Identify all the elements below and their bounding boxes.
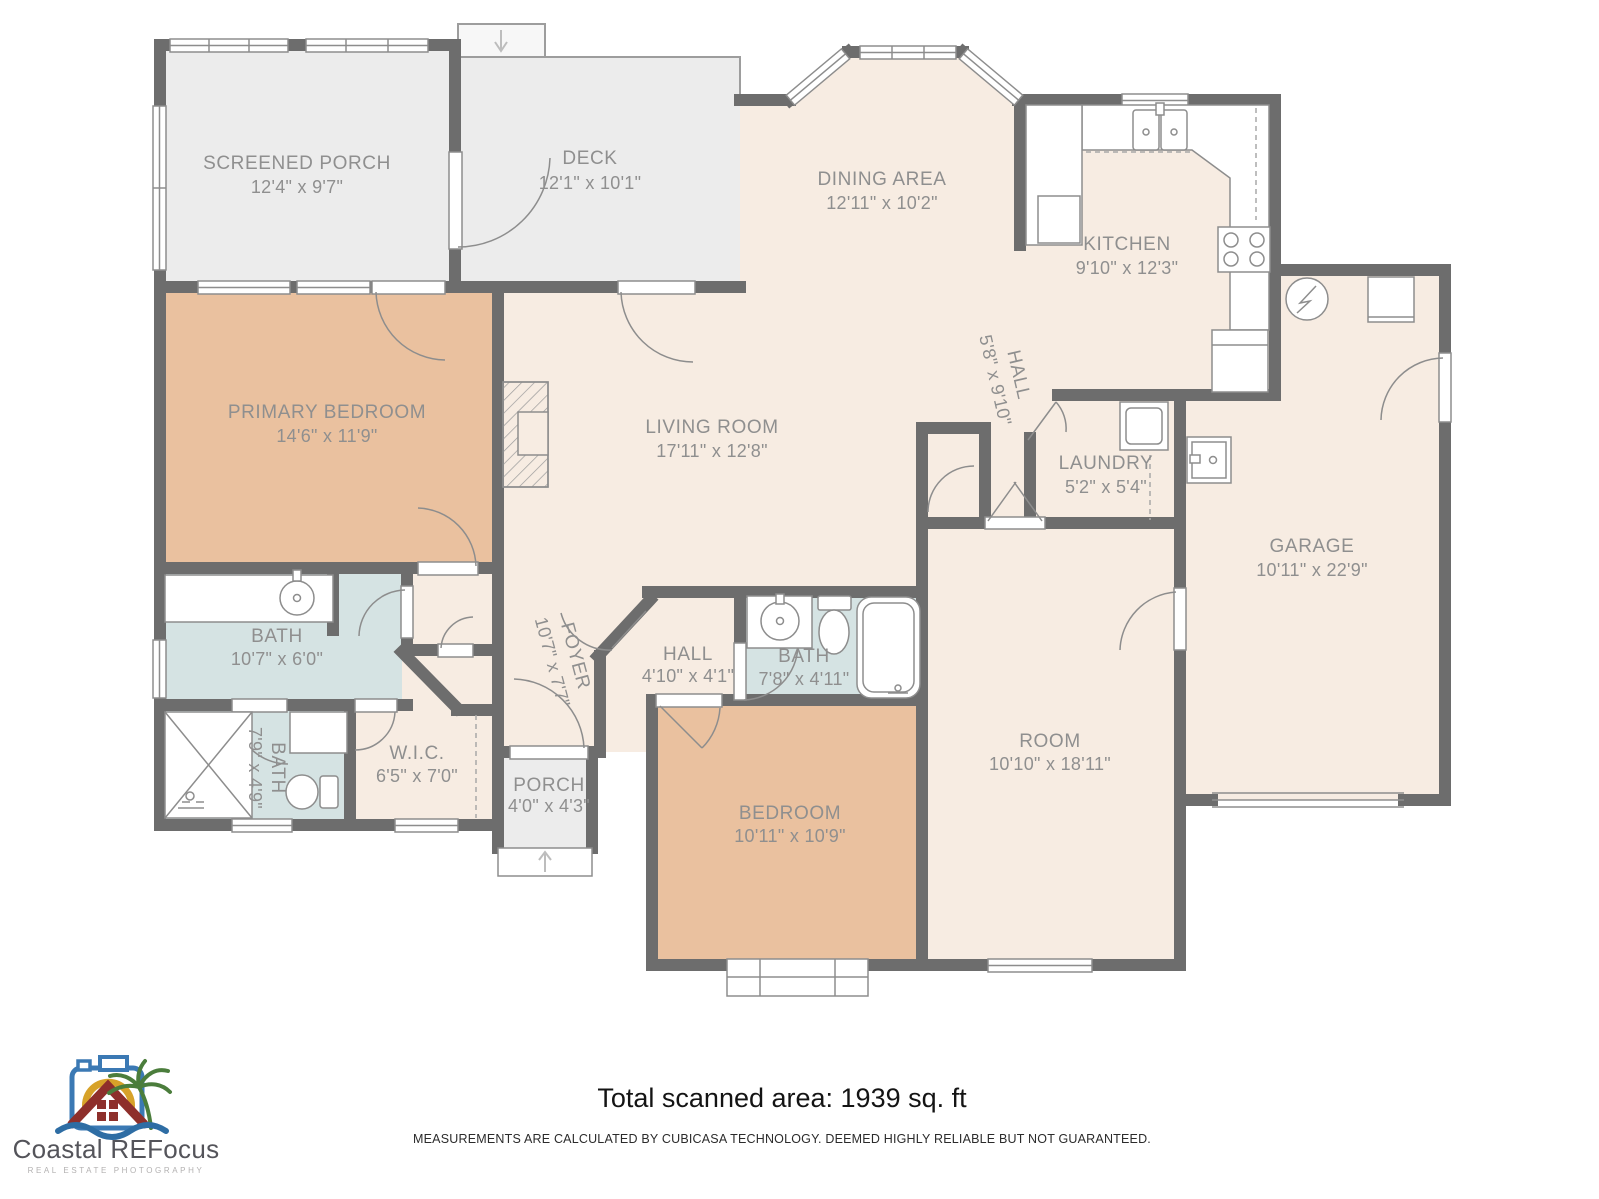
company-logo: Coastal REFocus REAL ESTATE PHOTOGRAPHY bbox=[13, 1057, 220, 1175]
label-laundry: LAUNDRY bbox=[1059, 453, 1154, 474]
wic-window bbox=[395, 819, 458, 832]
porch-top-window bbox=[306, 39, 428, 52]
porch-steps bbox=[498, 848, 592, 876]
label-dining: DINING AREA bbox=[817, 169, 946, 190]
bathtub bbox=[857, 597, 920, 698]
label-wic: W.I.C. bbox=[389, 743, 444, 764]
primary-bath-window bbox=[153, 640, 166, 698]
refrigerator bbox=[1212, 330, 1268, 392]
label-screened-porch-dims: 12'4" x 9'7" bbox=[251, 177, 343, 197]
shower bbox=[165, 712, 252, 818]
porch-bottom-window bbox=[198, 281, 290, 294]
label-living-room-dims: 17'11" x 12'8" bbox=[656, 441, 768, 461]
label-hall-small: HALL bbox=[663, 644, 713, 665]
disclaimer-text: MEASUREMENTS ARE CALCULATED BY CUBICASA … bbox=[413, 1132, 1151, 1146]
label-laundry-dims: 5'2" x 5'4" bbox=[1065, 477, 1147, 497]
floor-plan-page: SCREENED PORCH 12'4" x 9'7" DECK 12'1" x… bbox=[0, 0, 1599, 1199]
company-tagline: REAL ESTATE PHOTOGRAPHY bbox=[28, 1166, 205, 1175]
label-bedroom-dims: 10'11" x 10'9" bbox=[734, 826, 846, 846]
label-bedroom: BEDROOM bbox=[739, 803, 841, 824]
label-kitchen: KITCHEN bbox=[1083, 234, 1171, 255]
washer bbox=[1120, 402, 1168, 450]
bedroom-bay-window bbox=[727, 959, 868, 996]
label-hall-small-dims: 4'10" x 4'1" bbox=[642, 666, 734, 686]
label-garage: GARAGE bbox=[1270, 536, 1355, 557]
deck-floor bbox=[455, 57, 740, 287]
floor-plan-drawing: SCREENED PORCH 12'4" x 9'7" DECK 12'1" x… bbox=[0, 0, 1599, 1199]
total-area-label: Total scanned area: 1939 sq. ft bbox=[597, 1083, 967, 1113]
label-living-room: LIVING ROOM bbox=[645, 417, 778, 438]
label-porch-dims: 4'0" x 4'3" bbox=[508, 796, 590, 816]
label-primary-bath-dims: 10'7" x 6'0" bbox=[231, 649, 323, 669]
primary-bath-vanity bbox=[165, 570, 333, 622]
svg-text:7'9" x 4'9": 7'9" x 4'9" bbox=[245, 727, 265, 809]
porch-left-window bbox=[153, 106, 166, 270]
company-name: Coastal REFocus bbox=[13, 1134, 220, 1164]
bath2-window bbox=[232, 819, 292, 832]
label-room: ROOM bbox=[1019, 731, 1081, 752]
label-primary-bedroom-dims: 14'6" x 11'9" bbox=[276, 426, 377, 446]
label-hall-bath-dims: 7'8" x 4'11" bbox=[759, 669, 850, 689]
bath2-cabinet bbox=[290, 712, 347, 753]
label-hall-bath: BATH bbox=[778, 646, 830, 667]
label-room-dims: 10'10" x 18'11" bbox=[989, 754, 1111, 774]
label-screened-porch: SCREENED PORCH bbox=[203, 153, 391, 174]
room-window bbox=[988, 959, 1092, 972]
water-heater bbox=[1286, 278, 1328, 320]
hall-bath-vanity bbox=[747, 594, 812, 648]
fireplace bbox=[503, 382, 548, 487]
bath2-toilet bbox=[286, 775, 338, 809]
label-deck: DECK bbox=[562, 148, 617, 169]
svg-text:BATH: BATH bbox=[267, 742, 288, 794]
label-primary-bath: BATH bbox=[251, 626, 303, 647]
bay-window-top bbox=[860, 46, 956, 59]
label-dining-dims: 12'11" x 10'2" bbox=[826, 193, 938, 213]
label-kitchen-dims: 9'10" x 12'3" bbox=[1076, 258, 1179, 278]
label-primary-bedroom: PRIMARY BEDROOM bbox=[228, 402, 426, 423]
label-wic-dims: 6'5" x 7'0" bbox=[376, 766, 458, 786]
label-porch: PORCH bbox=[513, 775, 585, 796]
utility-sink bbox=[1187, 437, 1231, 483]
label-garage-dims: 10'11" x 22'9" bbox=[1256, 560, 1368, 580]
hvac-unit bbox=[1368, 277, 1414, 322]
stove bbox=[1218, 227, 1270, 272]
primary-bedroom-window bbox=[297, 281, 370, 294]
label-deck-dims: 12'1" x 10'1" bbox=[539, 173, 642, 193]
porch-top-window bbox=[170, 39, 288, 52]
